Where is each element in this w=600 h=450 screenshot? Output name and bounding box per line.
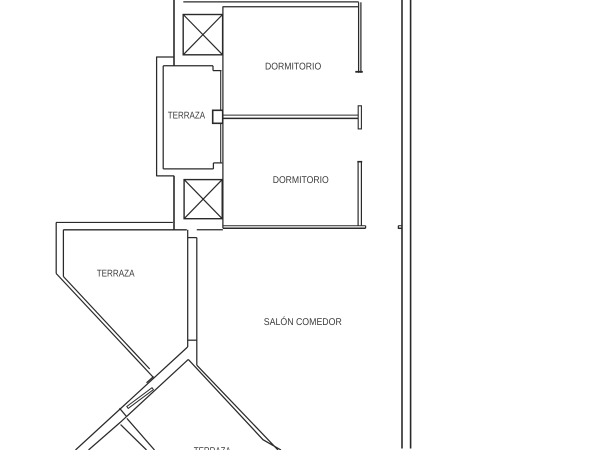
svg-text:TERRAZA: TERRAZA — [168, 111, 206, 122]
svg-text:DORMITORIO: DORMITORIO — [273, 175, 329, 186]
svg-text:DORMITORIO: DORMITORIO — [265, 62, 321, 73]
svg-text:TERRAZA: TERRAZA — [194, 446, 231, 450]
svg-text:SALÓN COMEDOR: SALÓN COMEDOR — [264, 316, 342, 328]
svg-text:TERRAZA: TERRAZA — [97, 269, 135, 280]
